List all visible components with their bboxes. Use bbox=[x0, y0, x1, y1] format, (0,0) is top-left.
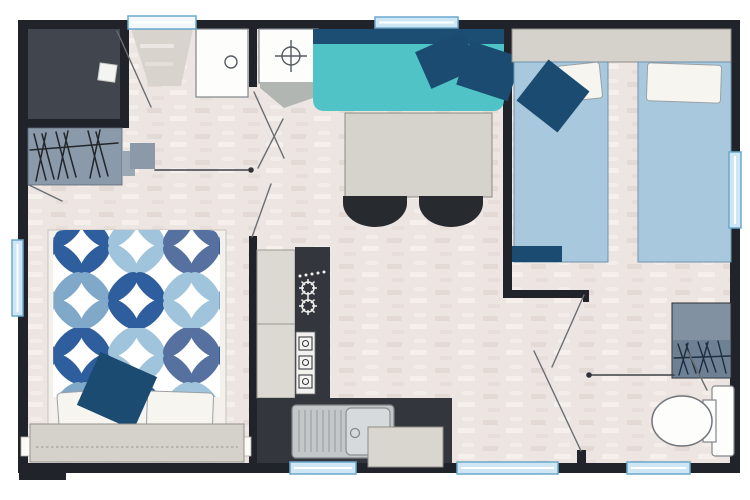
double-bed-headboard bbox=[30, 424, 244, 462]
wall-shower-bottom bbox=[28, 119, 129, 128]
wall-bedroom-kitchen bbox=[249, 236, 257, 463]
track-end-dot bbox=[248, 167, 254, 173]
appliance-icons bbox=[299, 337, 312, 388]
bed-foot-runner bbox=[512, 246, 562, 262]
cabinet-with-knob bbox=[196, 29, 248, 97]
wall-stub-bottom bbox=[577, 450, 586, 466]
wardrobe-right bbox=[672, 303, 731, 378]
corner-sofa bbox=[313, 29, 522, 111]
track-end-dot bbox=[586, 372, 592, 378]
sofa-backrest bbox=[313, 29, 504, 44]
toilet-bowl bbox=[652, 396, 712, 446]
dining-table bbox=[345, 113, 492, 197]
entry-step bbox=[19, 472, 66, 480]
pillow bbox=[646, 63, 721, 104]
shower-tray-icon bbox=[98, 63, 117, 82]
master-bedroom bbox=[21, 230, 251, 462]
wall-twinroom-bottom bbox=[503, 290, 585, 298]
floor-plan bbox=[0, 0, 750, 500]
shower-room bbox=[28, 29, 120, 119]
doormat-stripe bbox=[145, 62, 173, 66]
doormat-stripe bbox=[140, 44, 174, 48]
wall-stub-bathroom bbox=[249, 29, 257, 87]
wardrobe-right-lower bbox=[673, 340, 730, 377]
pillow bbox=[146, 391, 213, 429]
floor-plan-canvas bbox=[0, 0, 750, 500]
sliding-door-pocket bbox=[130, 143, 155, 169]
wall-shower-right bbox=[120, 29, 129, 128]
twin-headboard-shelf bbox=[512, 29, 731, 62]
worktop-appliance bbox=[368, 427, 443, 467]
